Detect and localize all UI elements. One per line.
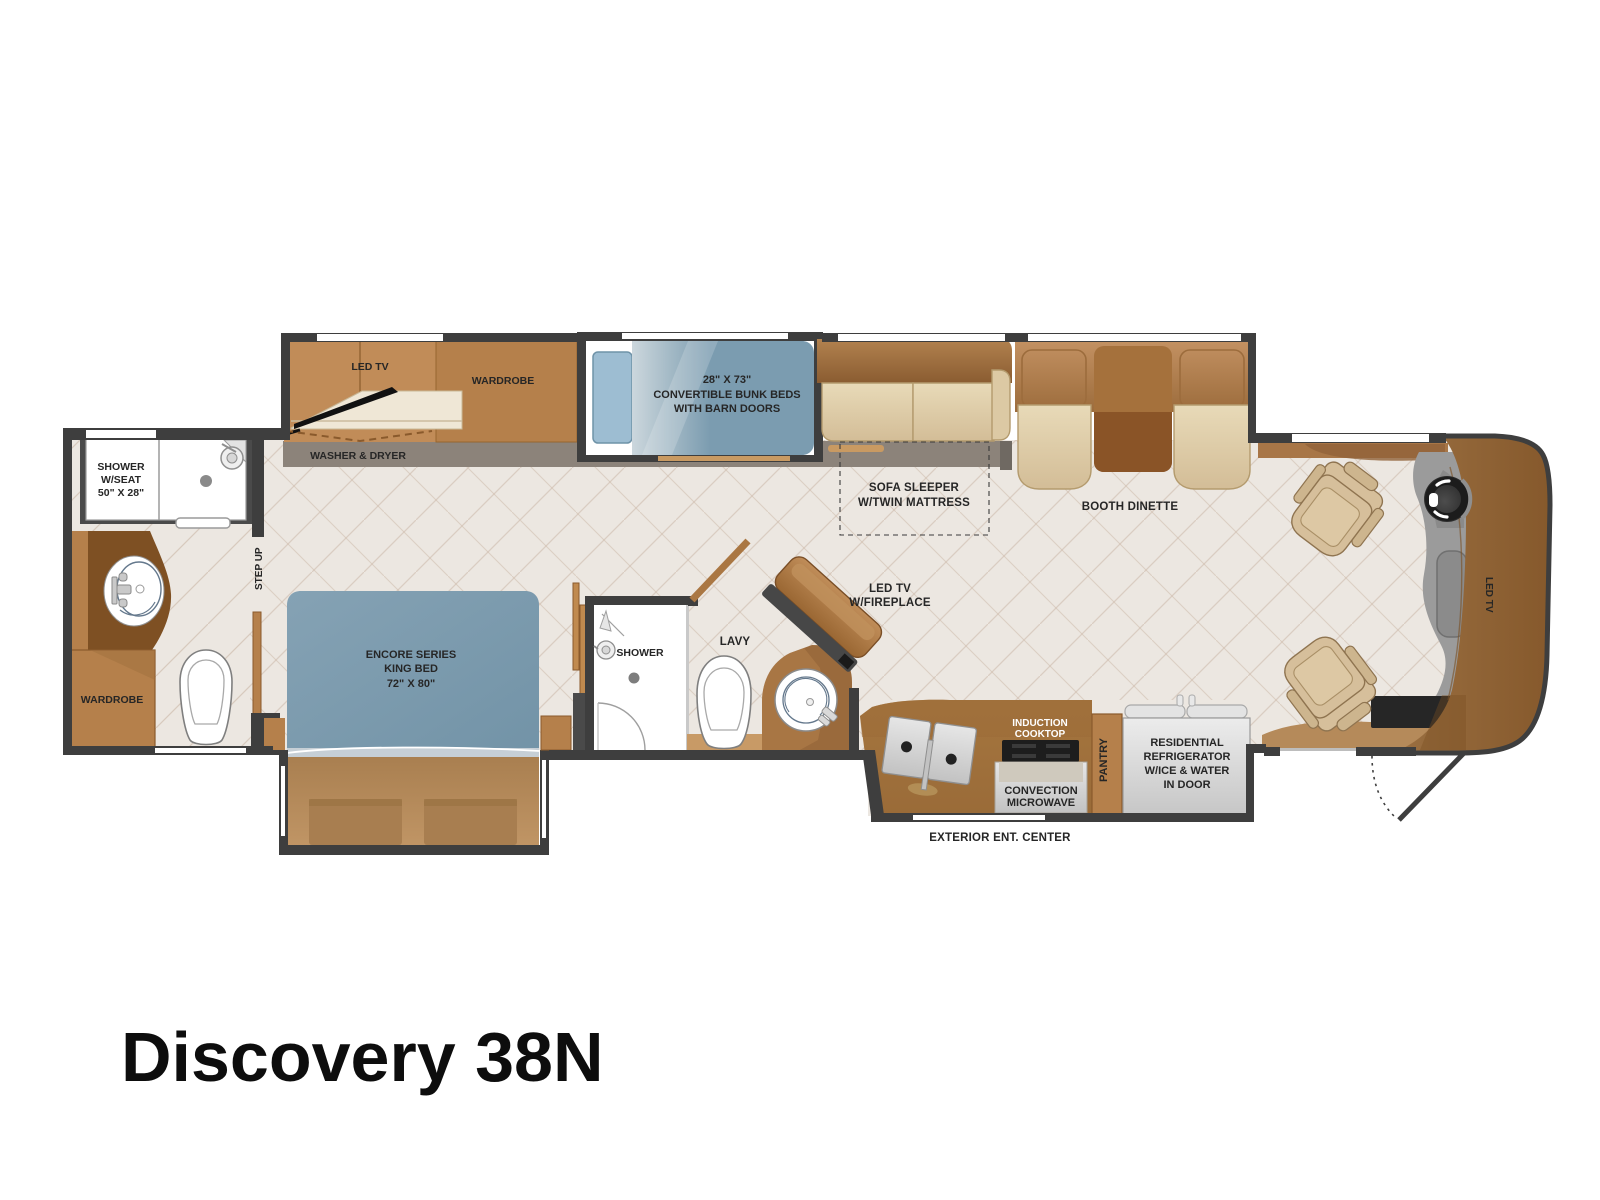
svg-text:SHOWER: SHOWER <box>97 461 145 473</box>
svg-text:Discovery 38N: Discovery 38N <box>121 1018 604 1096</box>
svg-text:MICROWAVE: MICROWAVE <box>1007 797 1075 809</box>
svg-text:WARDROBE: WARDROBE <box>472 375 534 387</box>
svg-text:W/FIREPLACE: W/FIREPLACE <box>849 597 931 609</box>
svg-text:ENCORE SERIES: ENCORE SERIES <box>366 649 456 661</box>
svg-text:LED TV: LED TV <box>869 583 911 595</box>
svg-text:CONVERTIBLE BUNK BEDS: CONVERTIBLE BUNK BEDS <box>653 389 800 401</box>
svg-text:RESIDENTIAL: RESIDENTIAL <box>1150 737 1224 749</box>
svg-text:W/ICE & WATER: W/ICE & WATER <box>1145 765 1230 777</box>
svg-text:WASHER & DRYER: WASHER & DRYER <box>310 450 406 462</box>
svg-text:W/SEAT: W/SEAT <box>101 474 142 486</box>
svg-text:IN DOOR: IN DOOR <box>1163 779 1210 791</box>
svg-text:LAVY: LAVY <box>720 636 751 648</box>
svg-text:REFRIGERATOR: REFRIGERATOR <box>1144 751 1231 763</box>
svg-text:EXTERIOR ENT. CENTER: EXTERIOR ENT. CENTER <box>929 832 1071 844</box>
svg-text:SOFA SLEEPER: SOFA SLEEPER <box>869 482 960 494</box>
svg-text:COOKTOP: COOKTOP <box>1015 729 1066 740</box>
svg-text:CONVECTION: CONVECTION <box>1004 785 1077 797</box>
svg-text:50" X 28": 50" X 28" <box>98 487 144 499</box>
svg-text:WARDROBE: WARDROBE <box>81 694 143 706</box>
svg-text:KING BED: KING BED <box>384 663 438 675</box>
svg-text:LED TV: LED TV <box>1483 577 1494 613</box>
svg-text:WITH BARN DOORS: WITH BARN DOORS <box>674 403 780 415</box>
svg-text:SHOWER: SHOWER <box>616 647 664 659</box>
svg-text:72" X 80": 72" X 80" <box>387 678 435 690</box>
svg-text:INDUCTION: INDUCTION <box>1012 718 1068 729</box>
svg-text:PANTRY: PANTRY <box>1098 737 1110 782</box>
svg-text:LED TV: LED TV <box>351 361 388 373</box>
svg-text:W/TWIN MATTRESS: W/TWIN MATTRESS <box>858 497 970 509</box>
svg-text:28" X 73": 28" X 73" <box>703 374 751 386</box>
svg-text:BOOTH DINETTE: BOOTH DINETTE <box>1082 501 1179 513</box>
svg-text:STEP UP: STEP UP <box>254 547 265 590</box>
